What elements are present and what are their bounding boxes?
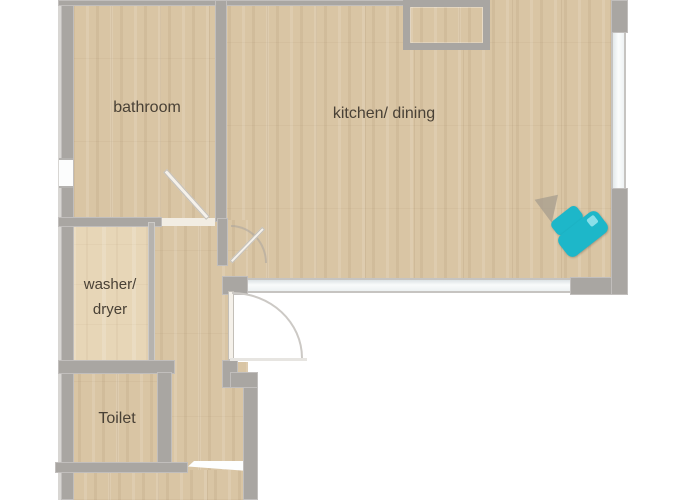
wall-bathroom-kitchen-divider bbox=[215, 0, 227, 222]
kitchen-dining-label: kitchen/ dining bbox=[318, 105, 450, 123]
wall-top-exterior bbox=[58, 0, 410, 6]
wall-kitchen-east-bottom bbox=[611, 188, 628, 295]
floorplan-canvas: bathroom kitchen/ dining washer/ dryer T… bbox=[0, 0, 700, 500]
washer-dryer-label-line1: washer/ bbox=[68, 272, 152, 297]
window-kitchen-east bbox=[611, 33, 626, 188]
bottom-room-floor bbox=[60, 470, 252, 500]
toilet-label: Toilet bbox=[84, 410, 150, 428]
wall-hallway-east bbox=[243, 376, 258, 500]
bathroom-label: bathroom bbox=[88, 99, 206, 117]
wall-toilet-east bbox=[157, 372, 172, 465]
bathroom-door-threshold bbox=[162, 218, 215, 226]
marker-detail-icon bbox=[586, 215, 599, 228]
wall-bathroom-south bbox=[58, 217, 162, 227]
entry-threshold-line bbox=[230, 358, 307, 361]
window-left-bathroom bbox=[59, 158, 73, 188]
wall-toilet-south bbox=[55, 462, 188, 473]
washer-dryer-label-line2: dryer bbox=[68, 297, 152, 322]
washer-dryer-label: washer/ dryer bbox=[68, 272, 152, 322]
wall-kitchen-east-top bbox=[611, 0, 628, 33]
kitchen-shaft-box bbox=[403, 0, 490, 50]
window-kitchen-south bbox=[248, 278, 570, 293]
wall-entry-step-horizontal bbox=[230, 372, 258, 388]
wall-left-exterior bbox=[58, 0, 74, 500]
wall-kitchen-west bbox=[217, 218, 228, 266]
